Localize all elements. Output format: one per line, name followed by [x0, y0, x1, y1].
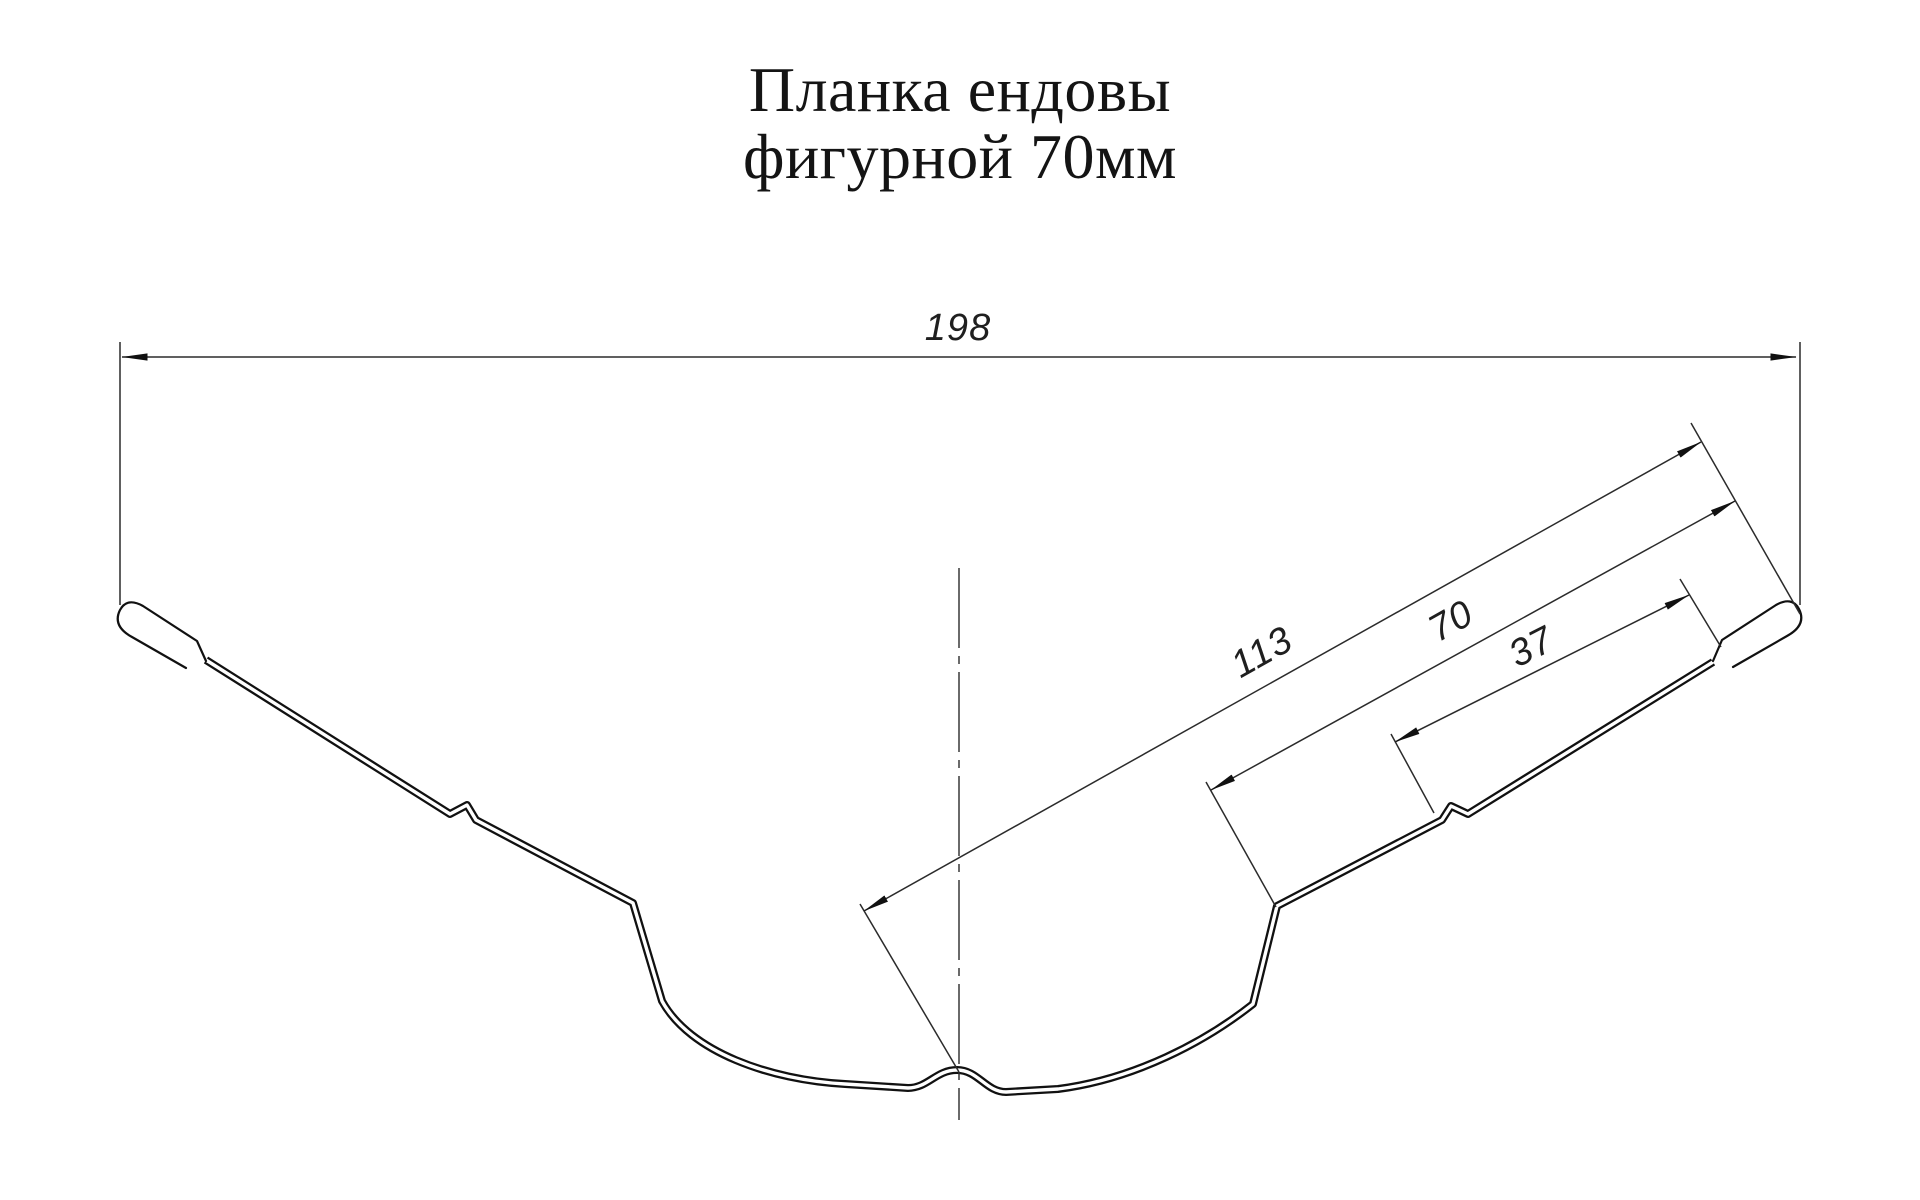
dim-198-label: 198 — [925, 307, 991, 349]
right-hem-fold — [1713, 601, 1801, 667]
dim-113-ext-edge — [1691, 423, 1800, 614]
dim-113-ext-center — [860, 904, 959, 1072]
dim-113-label: 113 — [1224, 619, 1300, 687]
dim-70-label: 70 — [1421, 592, 1480, 650]
dim-37-label: 37 — [1502, 618, 1561, 676]
dimension-198: 198 — [120, 307, 1800, 605]
dim-70-ext-knee — [1206, 782, 1276, 907]
dim-113-line — [864, 442, 1701, 911]
dimension-113: 113 — [860, 423, 1800, 1072]
technical-drawing-canvas: 198 113 70 37 — [0, 0, 1920, 1200]
dim-37-ext-rib — [1391, 734, 1434, 813]
dim-37-ext-hem — [1680, 579, 1721, 647]
left-hem-fold — [118, 602, 206, 668]
